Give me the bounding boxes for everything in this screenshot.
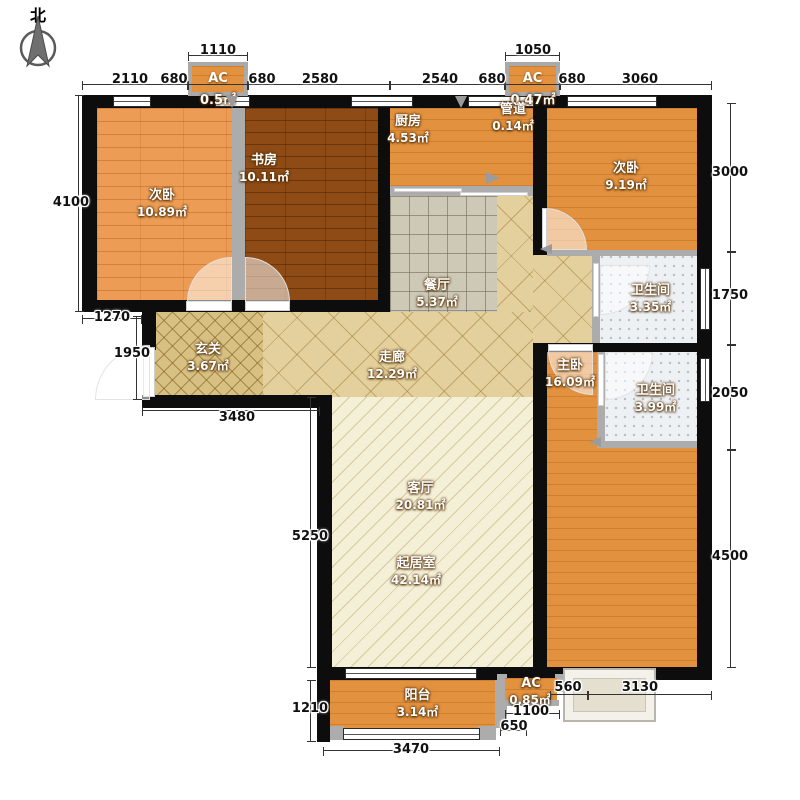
living-area-name: 起居室 <box>366 556 466 572</box>
duct-name: 管道 <box>478 102 548 118</box>
wall-arrow-top-right-icon <box>455 96 467 108</box>
label-study: 书房 10.11㎡ <box>214 153 314 185</box>
foyer-area: 3.67㎡ <box>163 358 253 374</box>
dim-1110: 1110 <box>186 44 250 58</box>
door-leaf-bathroom-top <box>593 263 599 317</box>
kitchen-area: 4.53㎡ <box>358 130 458 146</box>
master-bedroom-area: 16.09㎡ <box>524 374 616 390</box>
balcony-name: 阳台 <box>370 688 465 704</box>
dim-4100: 4100 <box>48 196 94 210</box>
label-duct: 管道 0.14㎡ <box>478 102 548 134</box>
bedroom-left-area: 10.89㎡ <box>112 204 212 220</box>
label-bedroom-left: 次卧 10.89㎡ <box>112 188 212 220</box>
dim-5250: 5250 <box>284 530 336 544</box>
dim-2580: 2580 <box>290 73 350 87</box>
window-kitchen <box>351 96 413 107</box>
dining-name: 餐厅 <box>387 278 487 294</box>
kitchen-name: 厨房 <box>358 114 458 130</box>
dim-1950: 1950 <box>104 347 160 361</box>
label-kitchen: 厨房 4.53㎡ <box>358 114 458 146</box>
wall-arrow-top-left-icon <box>226 96 238 108</box>
wall-arrow-bathroom-master-icon <box>589 437 601 447</box>
window-living-balcony <box>345 668 477 679</box>
dim-2050: 2050 <box>704 387 756 401</box>
floor-corridor-north <box>497 196 533 316</box>
duct-arrow-icon <box>486 172 500 184</box>
bathroom-master-area: 3.99㎡ <box>608 399 703 415</box>
floor-living-room <box>332 397 533 667</box>
study-name: 书房 <box>214 153 314 169</box>
ac-unit-top-left: AC <box>188 62 248 96</box>
living-area-area: 42.14㎡ <box>366 572 466 588</box>
bedroom-right-area: 9.19㎡ <box>576 177 676 193</box>
dim-3000: 3000 <box>704 166 756 180</box>
door-opening-study <box>245 301 290 311</box>
corridor-area: 12.29㎡ <box>345 366 439 382</box>
dim-680-c: 680 <box>470 73 514 87</box>
window-bedroom-right <box>567 96 657 107</box>
floor-plan-canvas: AC 0.5㎡ AC 0.47㎡ AC 0.85㎡ 次卧 10.89㎡ 书房 1… <box>0 0 800 800</box>
wall-entry-bottom <box>142 395 332 408</box>
floor-corridor-bath <box>533 255 592 343</box>
window-bedroom-left <box>113 96 151 107</box>
dim-line-ac1 <box>188 84 248 85</box>
dining-area: 5.37㎡ <box>387 294 487 310</box>
window-balcony <box>343 728 480 740</box>
dim-3480: 3480 <box>206 411 268 425</box>
dim-1210: 1210 <box>284 702 336 716</box>
label-corridor: 走廊 12.29㎡ <box>345 350 439 382</box>
label-foyer: 玄关 3.67㎡ <box>163 342 253 374</box>
bay-window-master <box>563 668 656 722</box>
dim-1050: 1050 <box>501 44 565 58</box>
balcony-area: 3.14㎡ <box>370 704 465 720</box>
partition-bedroom-study <box>232 108 245 302</box>
dim-680-a: 680 <box>152 73 196 87</box>
dim-560: 560 <box>545 681 591 695</box>
wall-living-master <box>533 343 547 667</box>
wall-arrow-bedroom-right-icon <box>540 244 552 254</box>
wall-bedrooms-bottom <box>97 300 385 312</box>
duct-area: 0.14㎡ <box>478 118 548 134</box>
compass: 北 <box>6 2 70 80</box>
corridor-name: 走廊 <box>345 350 439 366</box>
living-room-name: 客厅 <box>373 481 468 497</box>
label-dining: 餐厅 5.37㎡ <box>387 278 487 310</box>
partition-bathroom-master-bottom <box>597 441 712 448</box>
foyer-name: 玄关 <box>163 342 253 358</box>
bedroom-left-name: 次卧 <box>112 188 212 204</box>
kitchen-sliding-panel-left <box>394 188 462 192</box>
dim-3470: 3470 <box>380 743 442 757</box>
dim-2110: 2110 <box>100 73 160 87</box>
dim-4500: 4500 <box>704 550 756 564</box>
door-opening-bedroom-left <box>186 301 232 311</box>
label-living-area: 起居室 42.14㎡ <box>366 556 466 588</box>
label-living-room: 客厅 20.81㎡ <box>373 481 468 513</box>
bathroom-master-name: 卫生间 <box>608 383 703 399</box>
bedroom-right-name: 次卧 <box>576 161 676 177</box>
dim-2540: 2540 <box>410 73 470 87</box>
label-balcony: 阳台 3.14㎡ <box>370 688 465 720</box>
label-master-bedroom: 主卧 16.09㎡ <box>524 358 616 390</box>
label-bathroom-master: 卫生间 3.99㎡ <box>608 383 703 415</box>
living-room-area: 20.81㎡ <box>373 497 468 513</box>
dim-680-d: 680 <box>550 73 594 87</box>
kitchen-sliding-panel-right <box>460 192 528 196</box>
dim-1270: 1270 <box>84 311 140 325</box>
label-bathroom-top: 卫生间 3.35㎡ <box>603 283 698 315</box>
study-area: 10.11㎡ <box>214 169 314 185</box>
master-bedroom-name: 主卧 <box>524 358 616 374</box>
dim-680-b: 680 <box>240 73 284 87</box>
dim-1100: 1100 <box>504 705 558 719</box>
compass-icon <box>6 14 70 78</box>
bathroom-top-name: 卫生间 <box>603 283 698 299</box>
partition-bedroom-right-bath <box>547 250 697 256</box>
dim-650: 650 <box>493 720 535 734</box>
dim-3130: 3130 <box>612 681 668 695</box>
dim-3060: 3060 <box>610 73 670 87</box>
bathroom-top-area: 3.35㎡ <box>603 299 698 315</box>
dim-1750: 1750 <box>704 289 756 303</box>
label-bedroom-right: 次卧 9.19㎡ <box>576 161 676 193</box>
ac-top-left-area: 0.5㎡ <box>188 93 248 109</box>
